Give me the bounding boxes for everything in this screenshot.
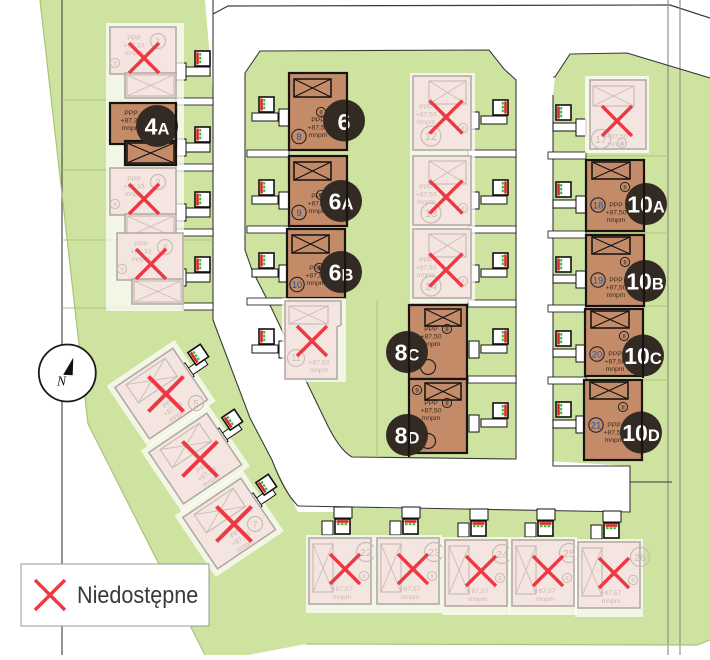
svg-text:7: 7 (252, 519, 257, 530)
svg-text:mnpm: mnpm (536, 596, 555, 603)
svg-text:PPP: PPP (419, 184, 433, 191)
svg-text:+87,57: +87,57 (400, 586, 421, 593)
svg-text:II: II (623, 259, 627, 266)
svg-text:25: 25 (563, 548, 575, 560)
svg-text:22: 22 (360, 547, 372, 559)
svg-text:PPP: PPP (419, 104, 433, 111)
svg-text:II: II (623, 184, 627, 191)
svg-text:+87,50: +87,50 (606, 285, 627, 292)
svg-text:PPP: PPP (607, 422, 621, 429)
svg-text:17: 17 (595, 134, 607, 146)
svg-text:24: 24 (496, 549, 508, 561)
svg-text:mnpm: mnpm (606, 366, 625, 373)
svg-text:18: 18 (593, 200, 604, 211)
svg-text:PPP: PPP (424, 400, 438, 407)
svg-text:+87,50: +87,50 (606, 210, 627, 217)
svg-text:PPP: PPP (124, 110, 138, 117)
svg-text:mnpm: mnpm (602, 598, 621, 605)
svg-text:mnpm: mnpm (309, 132, 328, 139)
svg-text:mnpm: mnpm (310, 367, 329, 374)
svg-text:N: N (56, 374, 67, 389)
svg-text:mnpm: mnpm (469, 596, 488, 603)
svg-text:26: 26 (634, 552, 646, 564)
svg-text:+87,50: +87,50 (416, 265, 437, 272)
svg-text:+87,50: +87,50 (309, 360, 330, 367)
svg-text:6: 6 (337, 109, 350, 135)
svg-text:II: II (430, 573, 434, 580)
svg-text:II: II (565, 575, 569, 582)
svg-text:20: 20 (592, 349, 603, 360)
svg-text:8: 8 (296, 132, 301, 143)
svg-text:II: II (445, 400, 449, 407)
svg-text:PPP: PPP (127, 176, 141, 183)
svg-text:+87,57: +87,57 (535, 588, 556, 595)
svg-text:II: II (319, 109, 323, 116)
svg-text:+87,50: +87,50 (416, 112, 437, 119)
svg-text:PPP: PPP (424, 326, 438, 333)
svg-text:mnpm: mnpm (607, 217, 626, 224)
svg-text:+87,50: +87,50 (416, 192, 437, 199)
svg-text:+87,50: +87,50 (421, 408, 442, 415)
svg-text:PPP: PPP (609, 277, 623, 284)
svg-text:5: 5 (193, 398, 198, 409)
svg-text:21: 21 (591, 420, 602, 431)
svg-text:II: II (113, 201, 117, 208)
svg-text:Niedostępne: Niedostępne (77, 581, 198, 608)
svg-text:II: II (445, 326, 449, 333)
svg-text:mnpm: mnpm (333, 594, 352, 601)
svg-text:II: II (113, 60, 117, 67)
svg-text:II: II (620, 140, 624, 147)
svg-text:PPP: PPP (419, 257, 433, 264)
svg-text:II: II (362, 573, 366, 580)
svg-text:II: II (498, 575, 502, 582)
svg-text:II: II (621, 404, 625, 411)
svg-text:mnpm: mnpm (401, 594, 420, 601)
svg-text:PPP: PPP (127, 35, 141, 42)
svg-text:23: 23 (428, 547, 440, 559)
svg-text:PPP: PPP (134, 241, 148, 248)
svg-text:PPP: PPP (609, 202, 623, 209)
svg-text:19: 19 (593, 275, 604, 286)
svg-text:9: 9 (296, 208, 301, 219)
svg-text:9: 9 (415, 388, 419, 395)
svg-text:+87,57: +87,57 (332, 586, 353, 593)
svg-text:mnpm: mnpm (607, 292, 626, 299)
svg-text:II: II (622, 333, 626, 340)
svg-text:mnpm: mnpm (422, 415, 441, 422)
svg-text:+87,57: +87,57 (468, 588, 489, 595)
svg-text:II: II (120, 266, 124, 273)
svg-text:10: 10 (292, 280, 303, 291)
svg-text:mnpm: mnpm (417, 119, 436, 126)
svg-text:+87,57: +87,57 (601, 590, 622, 597)
svg-text:II: II (631, 577, 635, 584)
svg-text:PPP: PPP (608, 351, 622, 358)
